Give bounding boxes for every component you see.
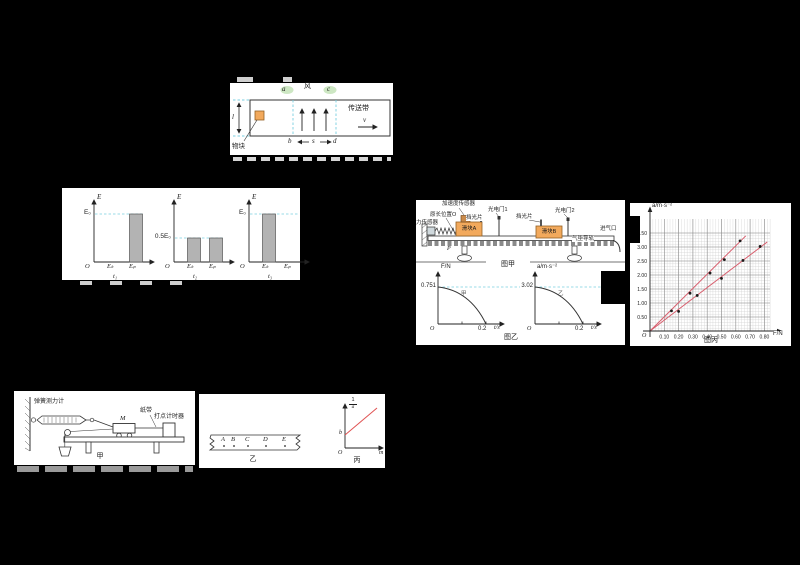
spring	[435, 228, 458, 234]
svg-text:0.20: 0.20	[674, 335, 684, 341]
time-label: t₁	[113, 273, 117, 280]
slider-b-label: 滑块B	[536, 229, 562, 235]
at-xtick: 0.2	[575, 326, 583, 333]
shutter-plate-b	[540, 220, 542, 227]
energy-chart-t3: E E₀ O Eₖ Eₚ t₃	[235, 192, 313, 280]
wind-label: 风	[304, 83, 311, 91]
accel-sensor-label: 加速度传感器	[442, 201, 475, 207]
grid-ylabel: a/m·s⁻²	[652, 203, 672, 210]
inverse-origin: O	[338, 450, 342, 457]
at-xlabel: t/s	[591, 325, 597, 332]
ft-ref-value: 0.751	[414, 283, 436, 290]
spring-scale-body	[37, 416, 86, 424]
svg-text:2.00: 2.00	[637, 273, 647, 279]
point-d-label: d	[333, 137, 337, 145]
energy-chart-t2: E 0.5E₀ O Eₖ Eₚ t₂	[160, 192, 238, 280]
energy-chart-axes	[80, 192, 158, 270]
inverse-a-ylabel: 1 a	[349, 398, 357, 411]
point-a-label: a	[282, 85, 286, 93]
clipped-text-line	[17, 466, 193, 472]
string-cart-to-pulley	[71, 429, 114, 432]
cat-ep-label: Eₚ	[209, 263, 216, 270]
ref-value-label: E₀	[62, 209, 91, 216]
clipped-text-line	[233, 157, 391, 161]
svg-text:1.00: 1.00	[637, 301, 647, 307]
block-label: 物块	[232, 143, 245, 150]
span-s-label: s	[312, 137, 315, 145]
grid-chart-panel: 0.100.200.300.400.500.600.700.800.501.00…	[630, 203, 791, 346]
redaction-notch	[630, 216, 640, 243]
at-ylabel: a/m·s⁻²	[537, 264, 557, 271]
belt-name-label: 传送带	[348, 105, 369, 113]
table-board	[64, 437, 184, 442]
point-p-label: P	[447, 246, 451, 253]
cat-ep-label: Eₚ	[129, 263, 136, 270]
ft-curve-tag: 甲	[461, 291, 467, 297]
clipped-text-line	[80, 281, 195, 285]
svg-text:0.70: 0.70	[745, 335, 755, 341]
grid-xlabel: F/N	[773, 331, 783, 338]
ft-origin: O	[430, 326, 434, 333]
graph-bing-caption: 丙	[345, 457, 369, 465]
redaction-notch	[601, 271, 625, 304]
figure-yi-caption: 图乙	[491, 334, 531, 342]
ref-value-label: 0.5E₀	[132, 233, 171, 240]
point-b-label: b	[288, 137, 292, 145]
track-supports	[458, 246, 582, 261]
hanging-bucket	[59, 447, 71, 456]
energy-bar-charts-panel: E E₀ O Eₖ Eₚ t₁ E 0.5E₀ O Eₖ Eₚ t₂	[62, 188, 300, 280]
energy-chart-axes	[235, 192, 313, 270]
ft-graph	[438, 272, 520, 324]
belt-outline	[250, 100, 390, 136]
time-label: t₂	[193, 273, 197, 280]
belt-speed-label: v	[363, 116, 366, 124]
axis-e-label: E	[252, 193, 256, 201]
cat-ek-label: Eₖ	[187, 263, 194, 270]
figure-jia-caption: 图甲	[486, 261, 530, 269]
accel-sensor-leader	[459, 208, 464, 215]
exam-page: 物块 l a 风 c 传送带 v b s d E E₀ O Eₖ Eₚ t₁	[0, 0, 800, 565]
track-name-label: 气垫导轨	[572, 236, 594, 242]
shutter-a-label: 挡光片	[466, 215, 483, 221]
svg-text:3.00: 3.00	[637, 245, 647, 251]
ref-value-label: E₀	[217, 209, 246, 216]
axis-e-label: E	[177, 193, 181, 201]
timer-label: 打点计时器	[154, 414, 184, 421]
width-dashed-lines	[233, 100, 250, 136]
svg-text:0.80: 0.80	[760, 335, 770, 341]
photogate2-label: 光电门2	[555, 208, 575, 214]
fraction-denominator: a	[349, 405, 357, 411]
origin-label: O	[240, 263, 245, 270]
airtrack-drawing	[416, 200, 625, 345]
clipped-text-fragment	[237, 77, 253, 82]
cart-body	[113, 424, 135, 434]
cat-ek-label: Eₖ	[107, 263, 114, 270]
at-curve-tag: 乙	[558, 291, 564, 297]
inverse-xlabel: m	[379, 450, 383, 457]
timer-box	[163, 423, 175, 437]
photogate2-head	[567, 218, 570, 222]
origin-label: O	[165, 263, 170, 270]
ft-xtick: 0.2	[478, 326, 486, 333]
origin-label: O	[85, 263, 90, 270]
photogate2-leader	[564, 214, 568, 218]
grid-origin: O	[642, 333, 646, 340]
svg-text:1.50: 1.50	[637, 287, 647, 293]
svg-text:0.10: 0.10	[659, 335, 669, 341]
natural-pos-label: 原长位置O	[430, 212, 456, 218]
belt-width-label: l	[232, 113, 234, 121]
at-ref-value: 3.02	[513, 283, 533, 290]
force-sensor-label: 力传感器	[416, 220, 438, 226]
paper-tape-label: 纸带	[140, 408, 152, 415]
figure-bing-caption: 图丙	[688, 337, 734, 345]
wall-hatching	[25, 399, 30, 451]
intercept-b-label: b	[339, 430, 342, 437]
table-leg	[86, 442, 91, 453]
air-inlet-tube	[613, 241, 620, 253]
at-origin: O	[527, 326, 531, 333]
tape-point-e: E	[282, 436, 286, 443]
string-scale-to-cart	[94, 420, 113, 427]
shutter-b-label: 挡光片	[516, 214, 533, 220]
energy-chart-axes	[160, 192, 238, 270]
tape-and-graph-panel: A B C D E 乙 1 a b O m 丙	[199, 394, 385, 468]
cart-mass-label: M	[120, 415, 125, 422]
air-inlet-label: 进气口	[600, 226, 617, 232]
tape-yi-caption: 乙	[241, 456, 265, 464]
inverse-a-graph	[345, 404, 383, 448]
photogate1-head	[498, 216, 501, 220]
scale-hook-ring	[31, 418, 35, 422]
cat-ep-label: Eₚ	[284, 263, 291, 270]
force-sensor-box	[427, 227, 435, 235]
ft-ylabel: F/N	[441, 264, 451, 271]
pulley	[65, 430, 71, 436]
time-label: t₃	[268, 273, 272, 280]
cart-experiment-panel: 弹簧测力计 M 纸带 打点计时器 甲	[14, 391, 195, 465]
axis-e-label: E	[97, 193, 101, 201]
ft-xlabel: t/s	[494, 325, 500, 332]
tape-point-b: B	[231, 436, 235, 443]
setup-jia-caption: 甲	[88, 453, 112, 461]
table-leg	[154, 442, 159, 453]
point-c-label: c	[327, 85, 330, 93]
clipped-text-fragment	[283, 77, 292, 82]
airtrack-panel: 加速度传感器 光电门1 光电门2 原长位置O 力传感器 挡光片 挡光片 滑块A …	[416, 200, 625, 345]
figure-conveyor-panel: 物块 l a 风 c 传送带 v b s d	[230, 83, 393, 155]
block	[255, 111, 264, 120]
svg-text:0.50: 0.50	[637, 315, 647, 321]
photogate1-label: 光电门1	[488, 207, 508, 213]
slider-a-label: 滑块A	[456, 226, 482, 232]
tape-point-c: C	[245, 436, 249, 443]
a-F-scatter-chart: 0.100.200.300.400.500.600.700.800.501.00…	[630, 203, 791, 346]
tape-point-d: D	[263, 436, 268, 443]
scale-end-ring	[90, 418, 94, 422]
spring-scale-label: 弹簧测力计	[34, 399, 64, 406]
cat-ek-label: Eₖ	[262, 263, 269, 270]
tape-point-a: A	[221, 436, 225, 443]
svg-text:2.50: 2.50	[637, 259, 647, 265]
